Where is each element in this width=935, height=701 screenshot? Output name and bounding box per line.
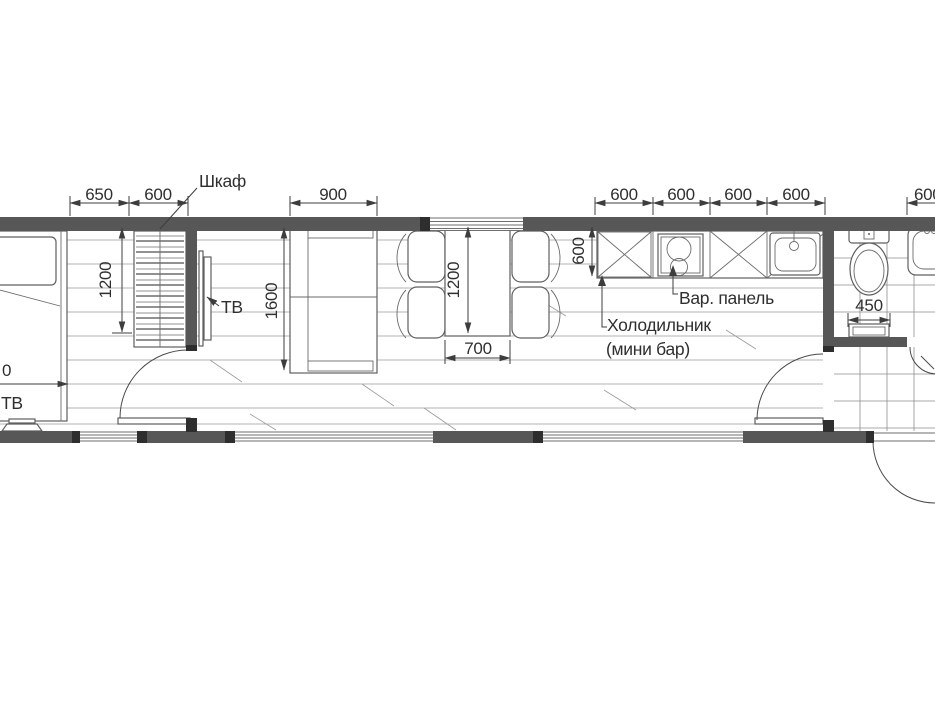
bedroom-door xyxy=(118,350,190,424)
floor-plan-page: 650 600 Шкаф 900 600 600 600 600 600 120… xyxy=(0,0,935,701)
top-window xyxy=(430,217,523,231)
floor-plan-drawing: 650 600 Шкаф 900 600 600 600 600 600 120… xyxy=(0,0,935,701)
dim-600-left: 600 xyxy=(144,185,171,204)
toilet xyxy=(849,226,889,295)
cooktop xyxy=(658,234,703,276)
entrance-door xyxy=(873,431,935,503)
dim-900: 900 xyxy=(319,185,346,204)
dining-chair xyxy=(397,231,445,282)
wardrobe xyxy=(134,231,186,347)
fridge-label-line2: (мини бар) xyxy=(606,339,690,359)
dining-chair xyxy=(512,287,560,338)
dim-450-wc: 450 xyxy=(855,296,882,315)
dim-600-k3: 600 xyxy=(724,185,751,204)
kitchen-sink xyxy=(770,228,820,275)
dim-700-table: 700 xyxy=(464,339,491,358)
bathroom-sink xyxy=(908,227,935,275)
tv-bed-label: ТВ xyxy=(1,393,23,413)
cooktop-label: Вар. панель xyxy=(679,288,774,308)
dim-1600-sofa: 1600 xyxy=(262,283,281,320)
dim-600-k2: 600 xyxy=(667,185,694,204)
dim-600-fridge: 600 xyxy=(569,237,588,264)
dim-1200-table: 1200 xyxy=(444,262,463,299)
bathroom-hall-door xyxy=(755,354,823,424)
bottom-window-1 xyxy=(80,431,137,443)
dining-chair xyxy=(397,287,445,338)
wardrobe-label: Шкаф xyxy=(199,171,246,191)
bottom-window-3 xyxy=(543,431,743,443)
dim-1200-left: 1200 xyxy=(96,262,115,299)
bottom-wall xyxy=(0,431,874,443)
tv-wall-label: ТВ xyxy=(221,297,243,317)
dining-chair xyxy=(512,231,560,282)
dim-650: 650 xyxy=(85,185,112,204)
bedroom-partition-wall xyxy=(186,231,197,432)
fridge-label-line1: Холодильник xyxy=(607,315,711,335)
bottom-window-2 xyxy=(235,431,433,443)
dim-600-k1: 600 xyxy=(610,185,637,204)
dim-600-k4: 600 xyxy=(782,185,809,204)
floor-step xyxy=(849,324,889,337)
sofa xyxy=(290,224,377,373)
dim-600-right: 600 xyxy=(914,185,935,204)
dim-cut-left: 0 xyxy=(2,361,11,380)
